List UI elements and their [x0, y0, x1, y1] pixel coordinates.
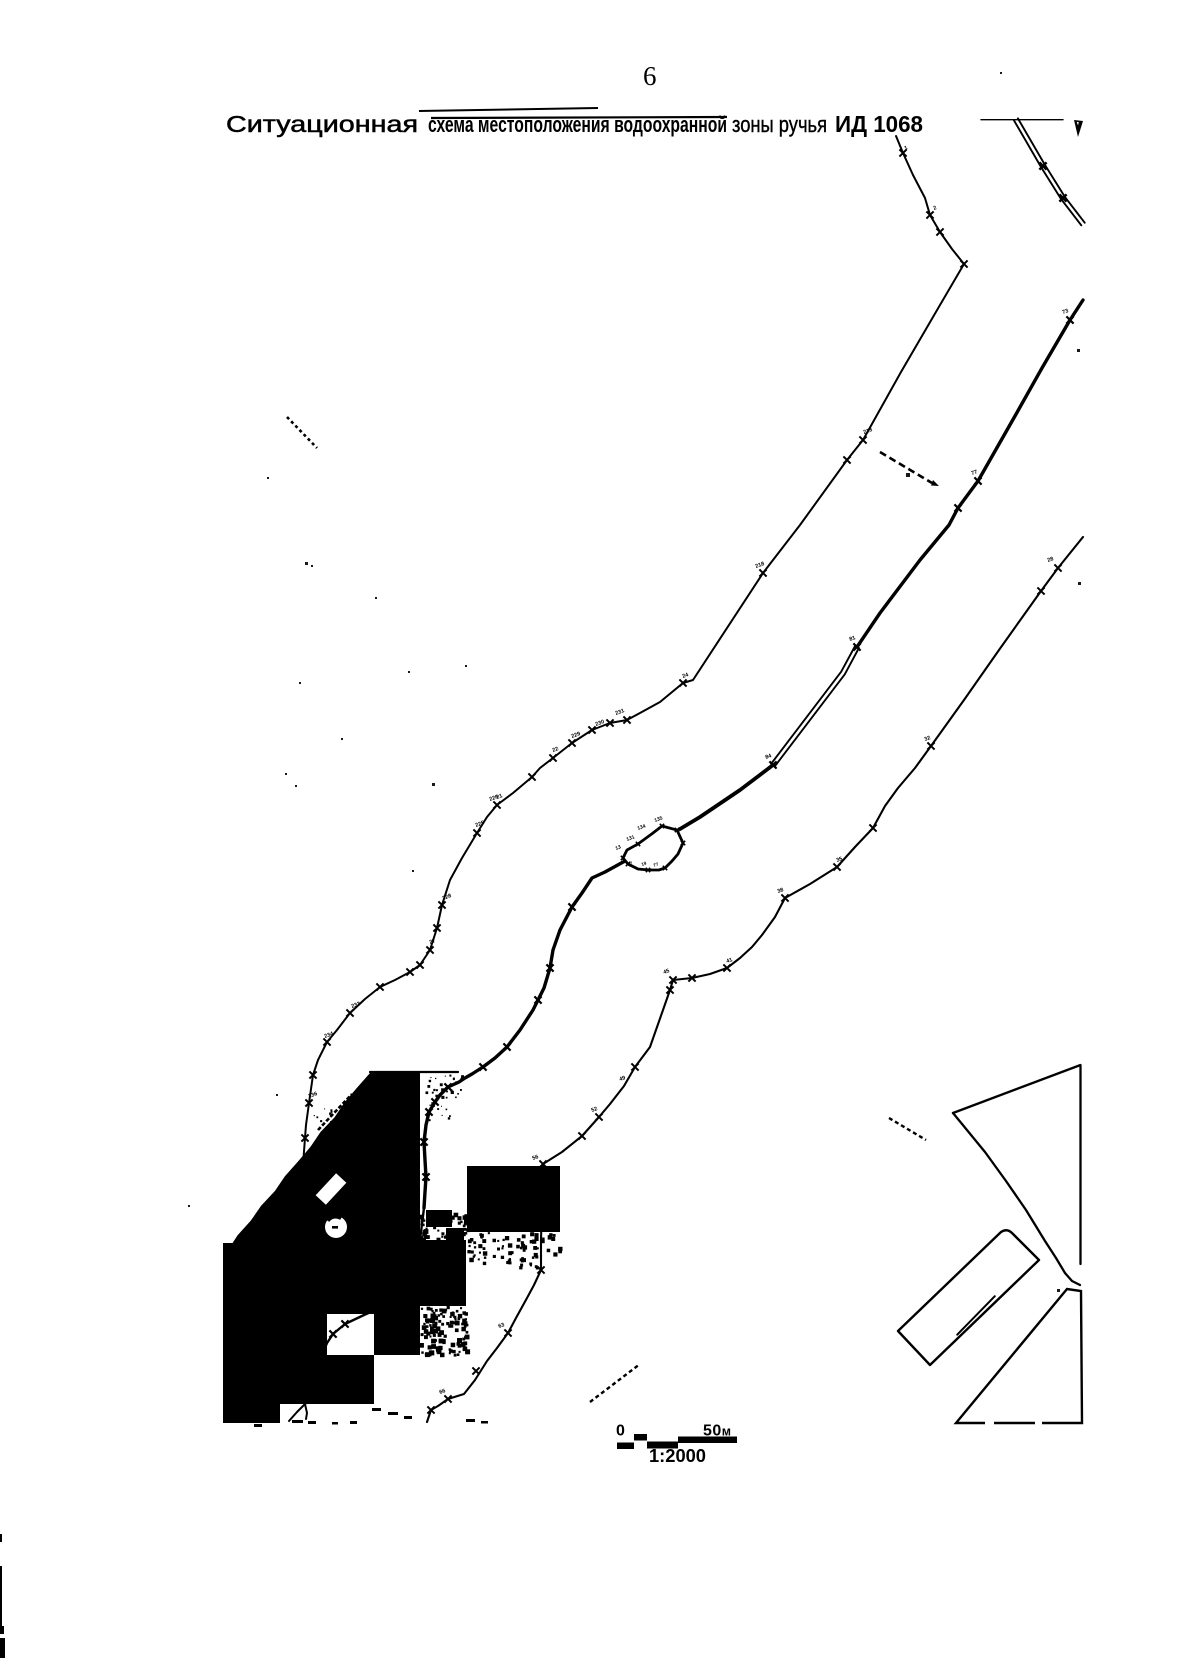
svg-text:1:2000: 1:2000 [649, 1446, 706, 1466]
svg-text:зоны ручья: зоны ручья [732, 112, 827, 137]
svg-text:6: 6 [643, 61, 657, 91]
svg-text:0: 0 [616, 1423, 625, 1440]
svg-text:ИД 1068: ИД 1068 [835, 111, 923, 137]
svg-text:схема местоположения водоохран: схема местоположения водоохранной [428, 112, 727, 137]
svg-text:Ситуационная: Ситуационная [226, 111, 418, 137]
